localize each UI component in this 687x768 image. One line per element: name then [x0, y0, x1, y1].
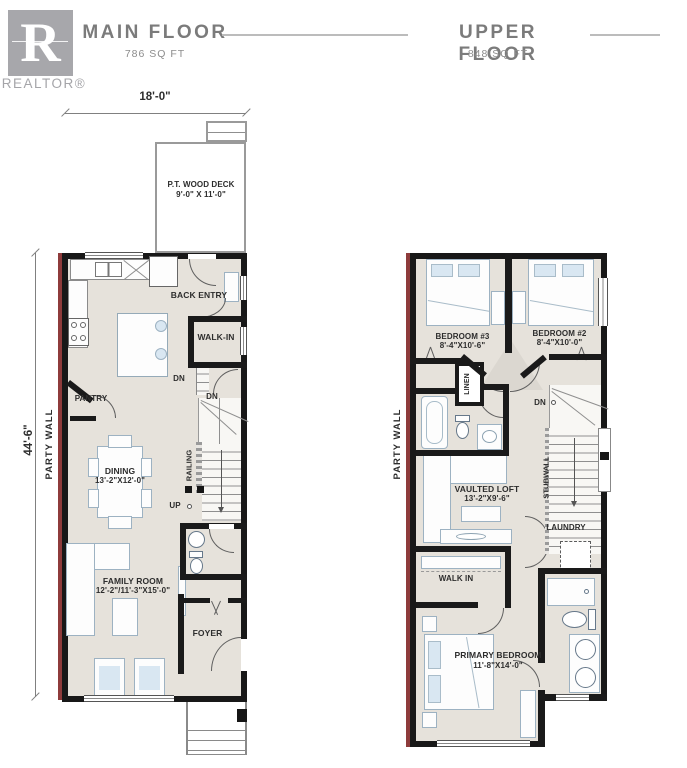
armchair: [94, 658, 125, 696]
burner: [71, 335, 77, 341]
header-divider-right: [590, 34, 660, 36]
header-divider-left: [222, 34, 408, 36]
realtor-logo: R: [8, 10, 73, 76]
media-console: [440, 529, 512, 544]
island-stool: [155, 348, 167, 360]
back-steps: [196, 366, 209, 395]
closet-shelf-line: [421, 571, 501, 572]
main-height-dimension: 44'-6": [23, 400, 37, 480]
dn-upper-label: DN: [530, 398, 550, 408]
deck-name: P.T. WOOD DECK: [157, 180, 245, 190]
family-room-dims: 12'-2"/11'-3"X15'-0": [70, 586, 196, 596]
wall: [540, 568, 607, 574]
wall: [416, 546, 511, 552]
overlook-post: [600, 452, 609, 460]
wall: [188, 316, 247, 322]
winder-stairs: [198, 398, 241, 444]
ensuite-sink: [575, 639, 596, 660]
party-wall-label-main: PARTY WALL: [44, 399, 56, 489]
dn-back-label: DN: [168, 374, 190, 384]
dn-stairs-label: DN: [201, 392, 223, 402]
bathtub-inner: [426, 401, 443, 444]
fridge: [149, 256, 178, 287]
stair-arrow-head: [571, 501, 577, 507]
bed-bedroom3: [426, 259, 490, 326]
primary-bedroom-label: PRIMARY BEDROOM: [428, 650, 568, 660]
console-detail: [456, 533, 486, 540]
wall: [228, 598, 247, 603]
bedroom2-dims: 8'-4"X10'-0": [512, 338, 607, 348]
pillow: [458, 264, 480, 277]
bedroom3-dims: 8'-4"X10'-6": [415, 341, 510, 351]
burner: [80, 322, 86, 328]
pillow: [562, 264, 584, 277]
closet-rod: [421, 556, 501, 569]
dishwasher: [123, 259, 148, 280]
nightstand: [422, 712, 437, 728]
bed-bedroom2: [528, 259, 594, 326]
deck-step-line: [208, 132, 245, 133]
upper-stairs: [549, 428, 601, 554]
entry-door-opening: [241, 639, 247, 671]
wall: [503, 384, 509, 456]
dining-chair: [108, 516, 132, 529]
dining-chair: [141, 489, 152, 508]
loft-label: VAULTED LOFT: [432, 484, 542, 494]
armchair-cushion: [99, 666, 120, 690]
wall: [180, 523, 186, 580]
dining-chair: [108, 435, 132, 448]
stair-start-marker: [187, 504, 192, 509]
nightstand: [512, 291, 526, 324]
wall: [416, 602, 478, 608]
toilet-tank: [455, 415, 470, 422]
back-entry-window: [240, 276, 247, 300]
dimension-line-horizontal: [65, 113, 246, 114]
wall: [188, 362, 247, 368]
stair-arrow-head: [218, 507, 224, 513]
porch-post: [237, 709, 247, 722]
toilet-bowl: [190, 558, 203, 574]
nightstand: [491, 291, 505, 325]
family-room-window: [84, 695, 174, 702]
wall: [416, 388, 457, 394]
realtor-logo-bar: [12, 41, 68, 42]
toilet-bowl: [562, 611, 587, 628]
bedroom2-window: [598, 278, 608, 326]
foyer-label: FOYER: [180, 628, 235, 638]
powder-sink: [188, 531, 205, 548]
party-wall-stripe-upper: [406, 253, 410, 747]
exterior-mask: [545, 701, 615, 753]
dining-dims: 13'-2"X12'-0": [85, 476, 155, 486]
dresser: [520, 690, 536, 738]
deck-steps: [206, 121, 247, 142]
upper-floor-area: 848 SQ FT: [418, 48, 578, 60]
pillow: [534, 264, 556, 277]
porch-steps: [188, 721, 245, 754]
primary-window: [437, 740, 530, 747]
armchair: [134, 658, 165, 696]
wall: [549, 354, 607, 360]
main-width-dimension: 18'-0": [120, 91, 190, 103]
stair-start-marker: [551, 400, 556, 405]
burner: [80, 335, 86, 341]
upper-winder-stairs: [549, 385, 601, 430]
wall: [410, 358, 468, 364]
blanket-fold: [530, 300, 593, 312]
party-wall-label-upper: PARTY WALL: [392, 399, 404, 489]
wall: [505, 546, 511, 608]
laundry-label: LAUNDRY: [538, 523, 594, 533]
toilet-tank: [588, 609, 596, 630]
loft-ottoman: [461, 506, 501, 522]
powder-door-opening: [209, 524, 234, 529]
pillow: [431, 264, 453, 277]
kitchen-window: [85, 252, 143, 259]
realtor-wordmark: REALTOR®: [0, 76, 88, 91]
loft-dims: 13'-2"X9'-6": [432, 494, 542, 504]
newel-post: [197, 486, 204, 493]
wall: [70, 416, 96, 421]
pantry-label: PANTRY: [70, 394, 112, 404]
armchair-cushion: [139, 666, 160, 690]
primary-bed: [424, 634, 494, 710]
family-room-label: FAMILY ROOM: [72, 576, 194, 586]
stair-arrow-line: [574, 438, 575, 502]
toilet-bowl: [456, 422, 469, 439]
railing-label: RAILING: [185, 438, 196, 494]
blanket-fold: [466, 637, 479, 708]
island-stool: [155, 320, 167, 332]
main-floor-area: 786 SQ FT: [75, 48, 235, 60]
linen-label: LINEN: [464, 366, 474, 402]
dining-label: DINING: [85, 466, 155, 476]
primary-bedroom-dims: 11'-8"X14'-0": [428, 661, 568, 671]
ensuite-counter: [547, 578, 595, 606]
dining-chair: [88, 489, 99, 508]
realtor-logo-letter: R: [8, 10, 73, 76]
blanket-fold: [428, 300, 489, 312]
bathtub: [421, 396, 448, 449]
ottoman: [112, 598, 138, 636]
stair-arrow-line: [221, 450, 222, 508]
wall: [416, 450, 509, 456]
kitchen-sink: [95, 262, 122, 277]
ensuite-window: [556, 694, 589, 701]
party-wall-stripe-main: [58, 253, 62, 700]
bath-sink: [482, 430, 497, 443]
up-label: UP: [164, 501, 186, 511]
stubwall-label: STUBWALL: [542, 448, 553, 508]
main-floor-title: MAIN FLOOR: [75, 22, 235, 44]
toilet-tank: [189, 551, 203, 558]
walk-in-label: WALK-IN: [186, 332, 246, 342]
back-entry-label: BACK ENTRY: [168, 290, 230, 300]
deck-dims: 9'-0" X 11'-0": [157, 190, 245, 200]
deck-door-opening: [188, 254, 216, 259]
winder-line: [219, 398, 220, 444]
wall: [184, 598, 210, 603]
floor-plan-page: R REALTOR® MAIN FLOOR 786 SQ FT UPPER FL…: [0, 0, 687, 768]
nightstand: [422, 616, 437, 632]
stair-overlook: [598, 428, 611, 492]
pillow: [428, 675, 441, 703]
walk-in-upper-label: WALK IN: [425, 574, 487, 584]
faucet: [584, 589, 589, 594]
burner: [71, 322, 77, 328]
wall: [538, 568, 545, 663]
ensuite-sink: [575, 667, 596, 688]
